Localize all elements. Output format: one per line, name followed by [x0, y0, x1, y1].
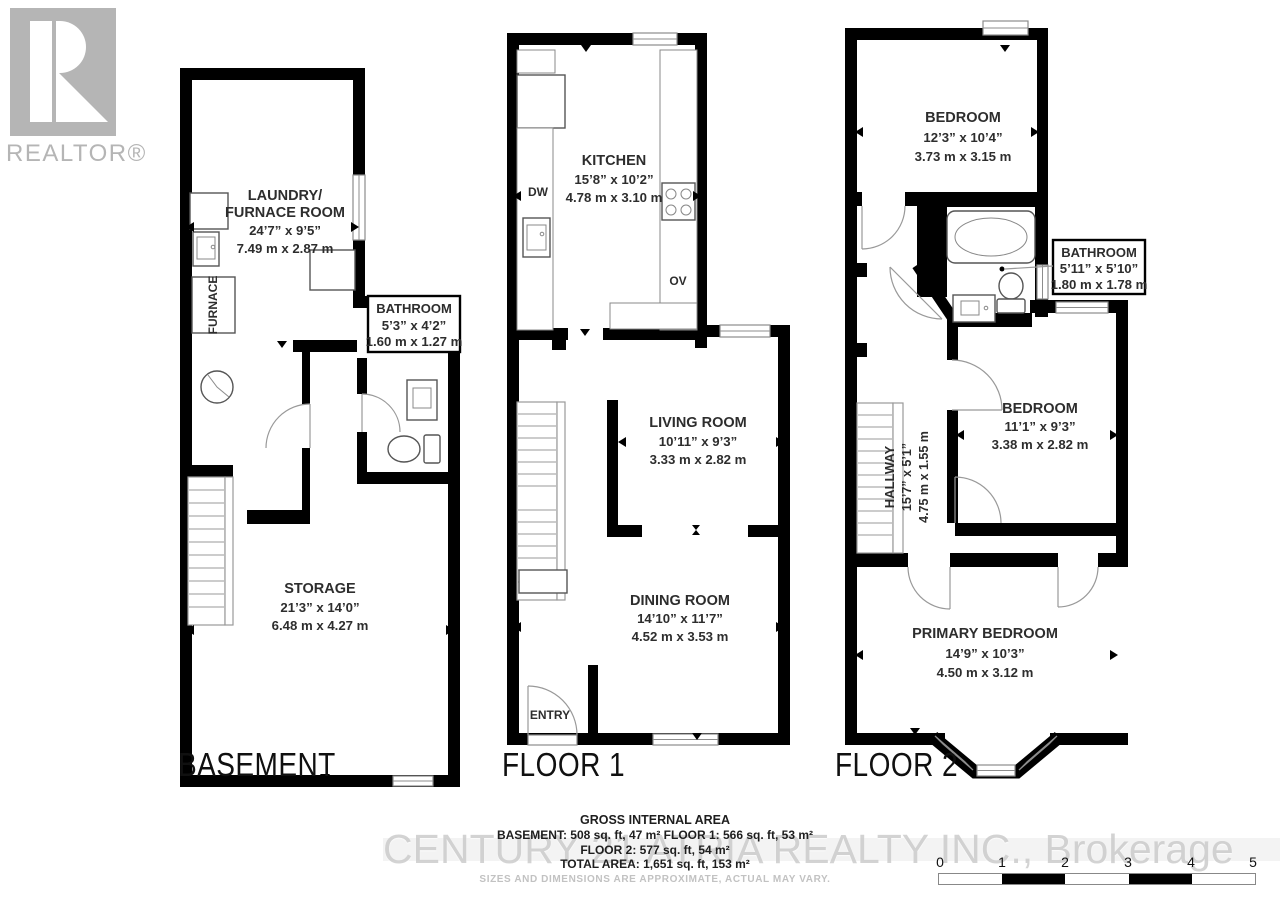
floor2-floorplan: BATHROOM 5’11” x 5’10” 1.80 m x 1.78 m B…	[830, 15, 1160, 805]
svg-text:11’1” x 9’3”: 11’1” x 9’3”	[1004, 419, 1075, 434]
scale-tick-5: 5	[1249, 854, 1257, 870]
scale-tick-3: 3	[1124, 854, 1132, 870]
washer-icon	[190, 193, 228, 229]
svg-text:12’3” x 10’4”: 12’3” x 10’4”	[923, 130, 1002, 145]
bathroom-imperial: 5’3” x 4’2”	[382, 318, 447, 333]
area-line-basement-floor1: BASEMENT: 508 sq. ft, 47 m² FLOOR 1: 566…	[330, 828, 980, 843]
bathroom-label-box: BATHROOM 5’3” x 4’2” 1.60 m x 1.27 m	[366, 296, 463, 352]
basement-title: BASEMENT	[178, 746, 336, 784]
furnace-label: FURNACE	[206, 276, 220, 335]
svg-text:LIVING ROOM: LIVING ROOM	[649, 415, 746, 431]
svg-text:HALLWAY: HALLWAY	[882, 445, 897, 508]
kitchen-sink-icon	[523, 218, 550, 257]
svg-text:3.73 m x 3.15 m: 3.73 m x 3.15 m	[915, 149, 1012, 164]
appliance-icon	[310, 250, 355, 290]
svg-text:14’10” x 11’7”: 14’10” x 11’7”	[637, 611, 723, 626]
laundry-room-label: LAUNDRY/ FURNACE ROOM 24’7” x 9’5” 7.49 …	[225, 188, 345, 256]
basement-doors	[266, 394, 400, 448]
svg-text:LAUNDRY/: LAUNDRY/	[248, 188, 322, 204]
floor1-floorplan: KITCHEN 15’8” x 10’2” 4.78 m x 3.10 m DW…	[498, 22, 798, 787]
basement-floorplan: FURNACE BATHROOM 5’3” x 4’2” 1.60 m x 1.…	[172, 60, 472, 795]
bathroom-metric: 1.60 m x 1.27 m	[366, 334, 463, 349]
entry-label: ENTRY	[530, 708, 570, 722]
scale-tick-4: 4	[1187, 854, 1195, 870]
scale-tick-0: 0	[936, 854, 944, 870]
dining-room-label: DINING ROOM 14’10” x 11’7” 4.52 m x 3.53…	[630, 593, 730, 644]
dw-label: DW	[528, 185, 549, 199]
svg-text:3.33 m x 2.82 m: 3.33 m x 2.82 m	[650, 452, 747, 467]
floorplan-page: REALTOR®	[0, 0, 1280, 905]
svg-text:STORAGE: STORAGE	[284, 581, 356, 597]
svg-text:BEDROOM: BEDROOM	[1002, 401, 1078, 417]
toilet-icon	[997, 273, 1025, 313]
svg-text:15’7” x 5’1”: 15’7” x 5’1”	[900, 443, 914, 511]
bathtub-icon	[947, 211, 1035, 263]
storage-room-label: STORAGE 21’3” x 14’0” 6.48 m x 4.27 m	[272, 581, 369, 633]
area-line-total: TOTAL AREA: 1,651 sq. ft, 153 m²	[330, 857, 980, 872]
svg-text:4.75 m x 1.55 m: 4.75 m x 1.55 m	[917, 431, 931, 523]
svg-text:6.48 m x 4.27 m: 6.48 m x 4.27 m	[272, 618, 369, 633]
realtor-logo-text: REALTOR®	[6, 140, 156, 168]
floor1-title: FLOOR 1	[502, 746, 625, 784]
svg-text:15’8” x 10’2”: 15’8” x 10’2”	[574, 172, 653, 187]
furnace-box: FURNACE	[192, 276, 235, 335]
svg-text:7.49 m x 2.87 m: 7.49 m x 2.87 m	[237, 241, 334, 256]
primary-bedroom-label: PRIMARY BEDROOM 14’9” x 10’3” 4.50 m x 3…	[912, 626, 1058, 680]
area-line-floor2: FLOOR 2: 577 sq. ft, 54 m²	[330, 843, 980, 858]
svg-text:24’7” x 9’5”: 24’7” x 9’5”	[249, 223, 321, 238]
kitchen-label: KITCHEN 15’8” x 10’2” 4.78 m x 3.10 m	[566, 153, 663, 205]
svg-text:KITCHEN: KITCHEN	[582, 153, 646, 169]
area-summary: GROSS INTERNAL AREA BASEMENT: 508 sq. ft…	[330, 813, 980, 872]
stove-icon	[662, 183, 695, 220]
svg-text:10’11” x 9’3”: 10’11” x 9’3”	[659, 434, 737, 449]
ov-label: OV	[669, 274, 686, 288]
water-tank-icon	[201, 371, 233, 403]
svg-text:4.78 m x 3.10 m: 4.78 m x 3.10 m	[566, 190, 663, 205]
scale-tick-1: 1	[998, 854, 1006, 870]
basement-walls	[180, 68, 460, 787]
svg-text:4.50 m x 3.12 m: 4.50 m x 3.12 m	[937, 665, 1034, 680]
sideboard-icon	[519, 570, 567, 593]
svg-text:14’9” x 10’3”: 14’9” x 10’3”	[945, 646, 1024, 661]
living-room-label: LIVING ROOM 10’11” x 9’3” 3.33 m x 2.82 …	[649, 415, 746, 467]
bathroom-sink-icon	[953, 295, 995, 322]
basement-stairs	[188, 477, 233, 625]
svg-text:DINING ROOM: DINING ROOM	[630, 593, 730, 609]
realtor-logo-icon	[10, 8, 116, 136]
scale-bar: 0 1 2 3 4 5	[938, 854, 1256, 890]
laundry-sink-icon	[193, 232, 219, 266]
svg-text:PRIMARY BEDROOM: PRIMARY BEDROOM	[912, 626, 1058, 642]
bathroom-name: BATHROOM	[376, 301, 452, 316]
scale-bar-segments	[938, 873, 1256, 885]
area-summary-title: GROSS INTERNAL AREA	[330, 813, 980, 828]
svg-text:4.52 m x 3.53 m: 4.52 m x 3.53 m	[632, 629, 729, 644]
bathroom2-imperial: 5’11” x 5’10”	[1060, 261, 1138, 276]
bedroom2-label: BEDROOM 11’1” x 9’3” 3.38 m x 2.82 m	[992, 401, 1089, 452]
bathroom2-name: BATHROOM	[1061, 245, 1137, 260]
disclaimer-text: SIZES AND DIMENSIONS ARE APPROXIMATE, AC…	[330, 874, 980, 885]
svg-text:3.38 m x 2.82 m: 3.38 m x 2.82 m	[992, 437, 1089, 452]
floor2-title: FLOOR 2	[835, 746, 958, 784]
svg-text:21’3” x 14’0”: 21’3” x 14’0”	[280, 600, 359, 615]
scale-tick-2: 2	[1061, 854, 1069, 870]
bedroom1-label: BEDROOM 12’3” x 10’4” 3.73 m x 3.15 m	[915, 110, 1012, 164]
basement-bathroom-fixtures	[388, 380, 440, 463]
svg-text:BEDROOM: BEDROOM	[925, 110, 1001, 126]
svg-text:FURNACE ROOM: FURNACE ROOM	[225, 205, 345, 221]
bathroom2-metric: 1.80 m x 1.78 m	[1051, 277, 1148, 292]
